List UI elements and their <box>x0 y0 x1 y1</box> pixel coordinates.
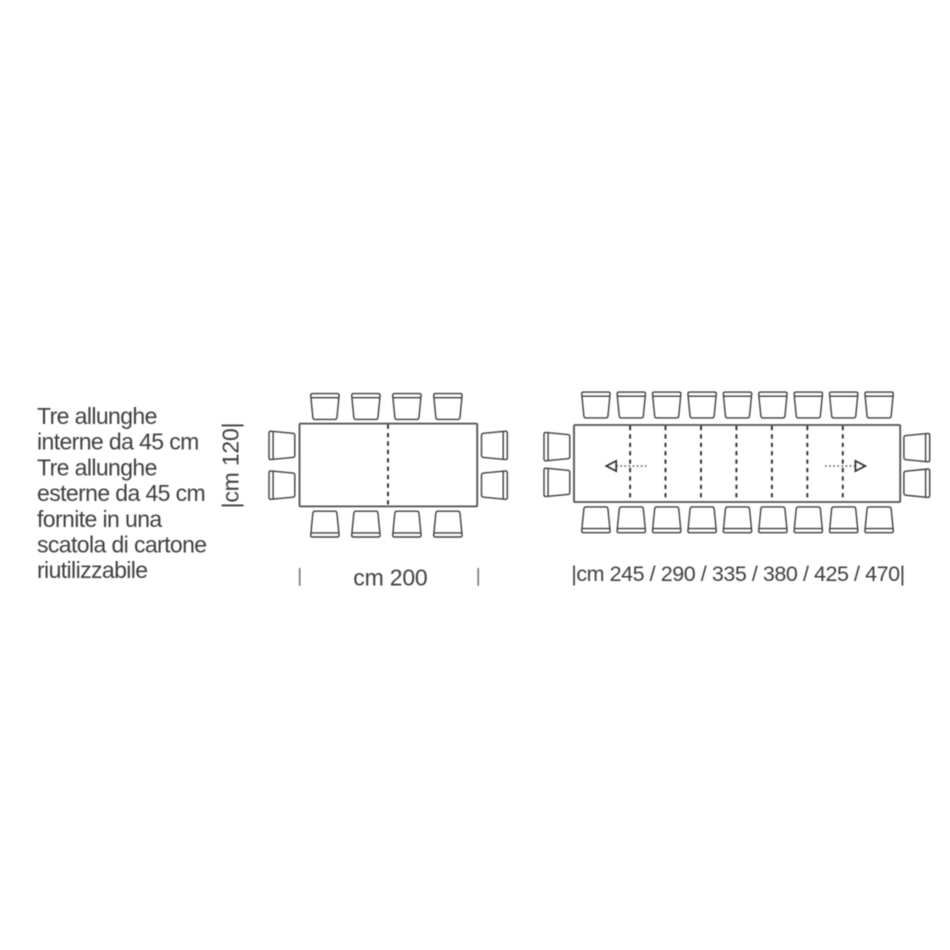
svg-text:riutilizzabile: riutilizzabile <box>37 557 147 583</box>
svg-text:interne da 45 cm: interne da 45 cm <box>37 429 199 455</box>
svg-text:esterne da 45 cm: esterne da 45 cm <box>37 480 205 506</box>
svg-text:Tre allunghe: Tre allunghe <box>37 454 157 480</box>
svg-text:cm 200: cm 200 <box>353 565 427 591</box>
svg-text:fornite in una: fornite in una <box>37 506 162 532</box>
svg-text:|cm 120|: |cm 120| <box>217 423 243 509</box>
svg-text:|cm 245 / 290 / 335 / 380 / 42: |cm 245 / 290 / 335 / 380 / 425 / 470| <box>571 562 905 586</box>
svg-text:scatola di cartone: scatola di cartone <box>37 532 206 558</box>
svg-text:Tre allunghe: Tre allunghe <box>37 403 157 429</box>
